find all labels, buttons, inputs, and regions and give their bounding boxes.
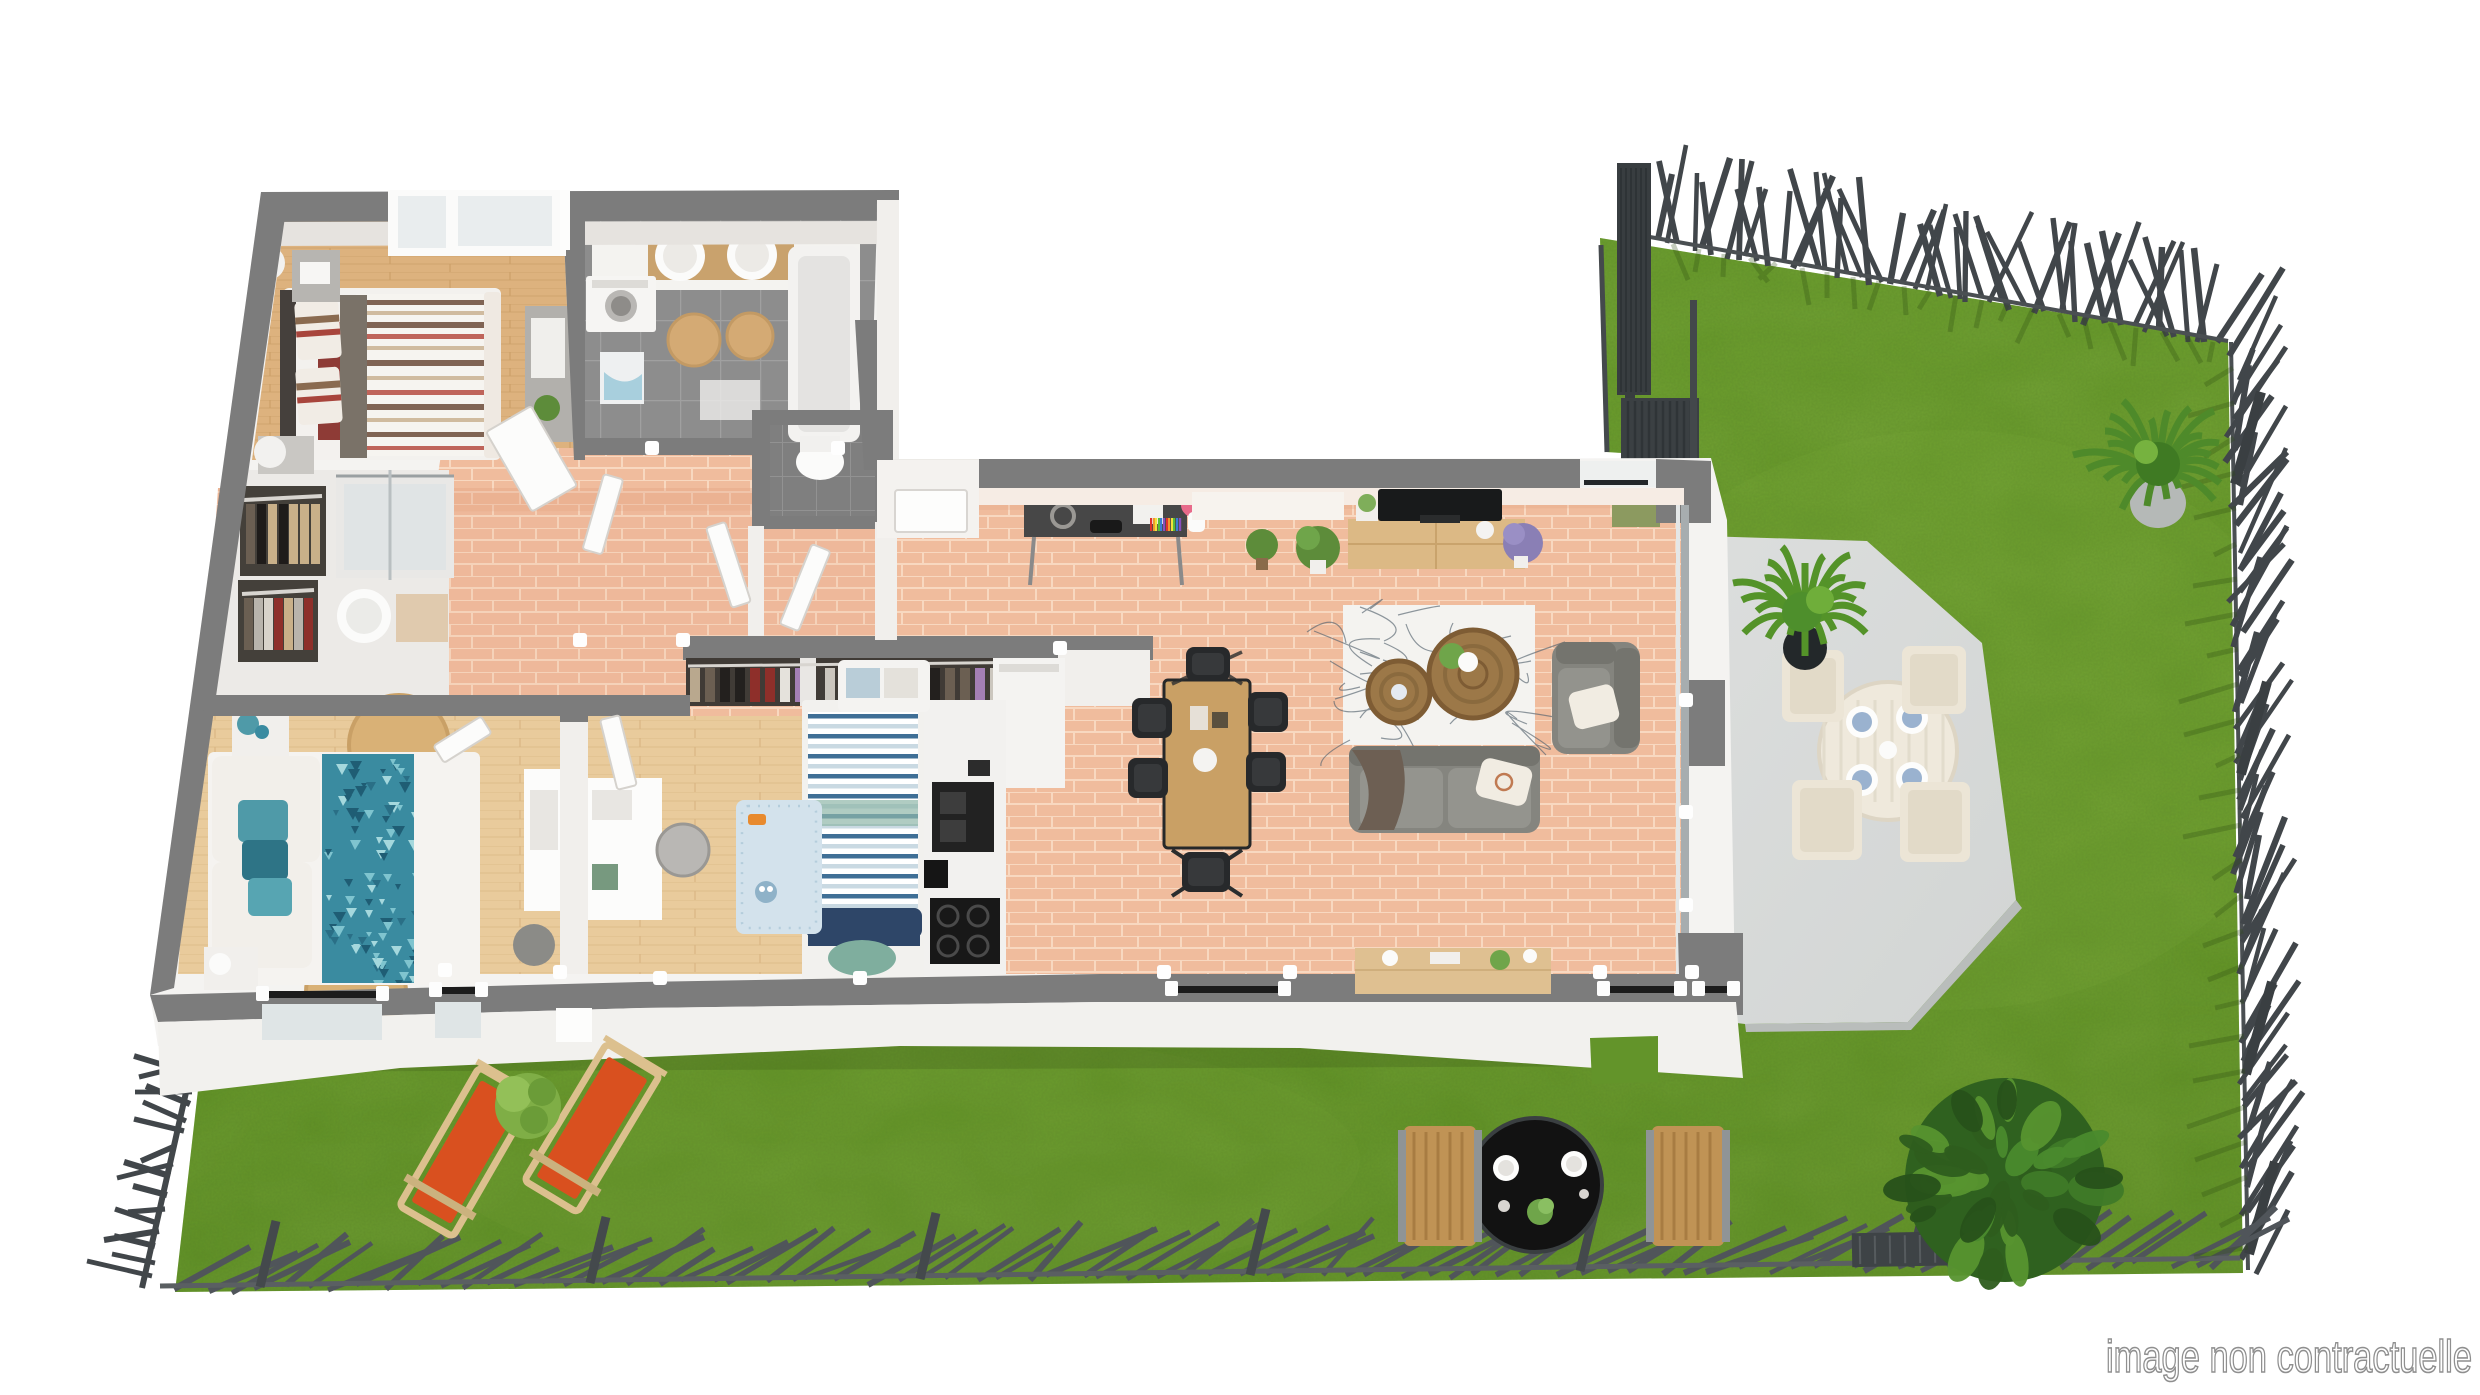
svg-text:image non contractuelle: image non contractuelle [2106,1331,2472,1382]
